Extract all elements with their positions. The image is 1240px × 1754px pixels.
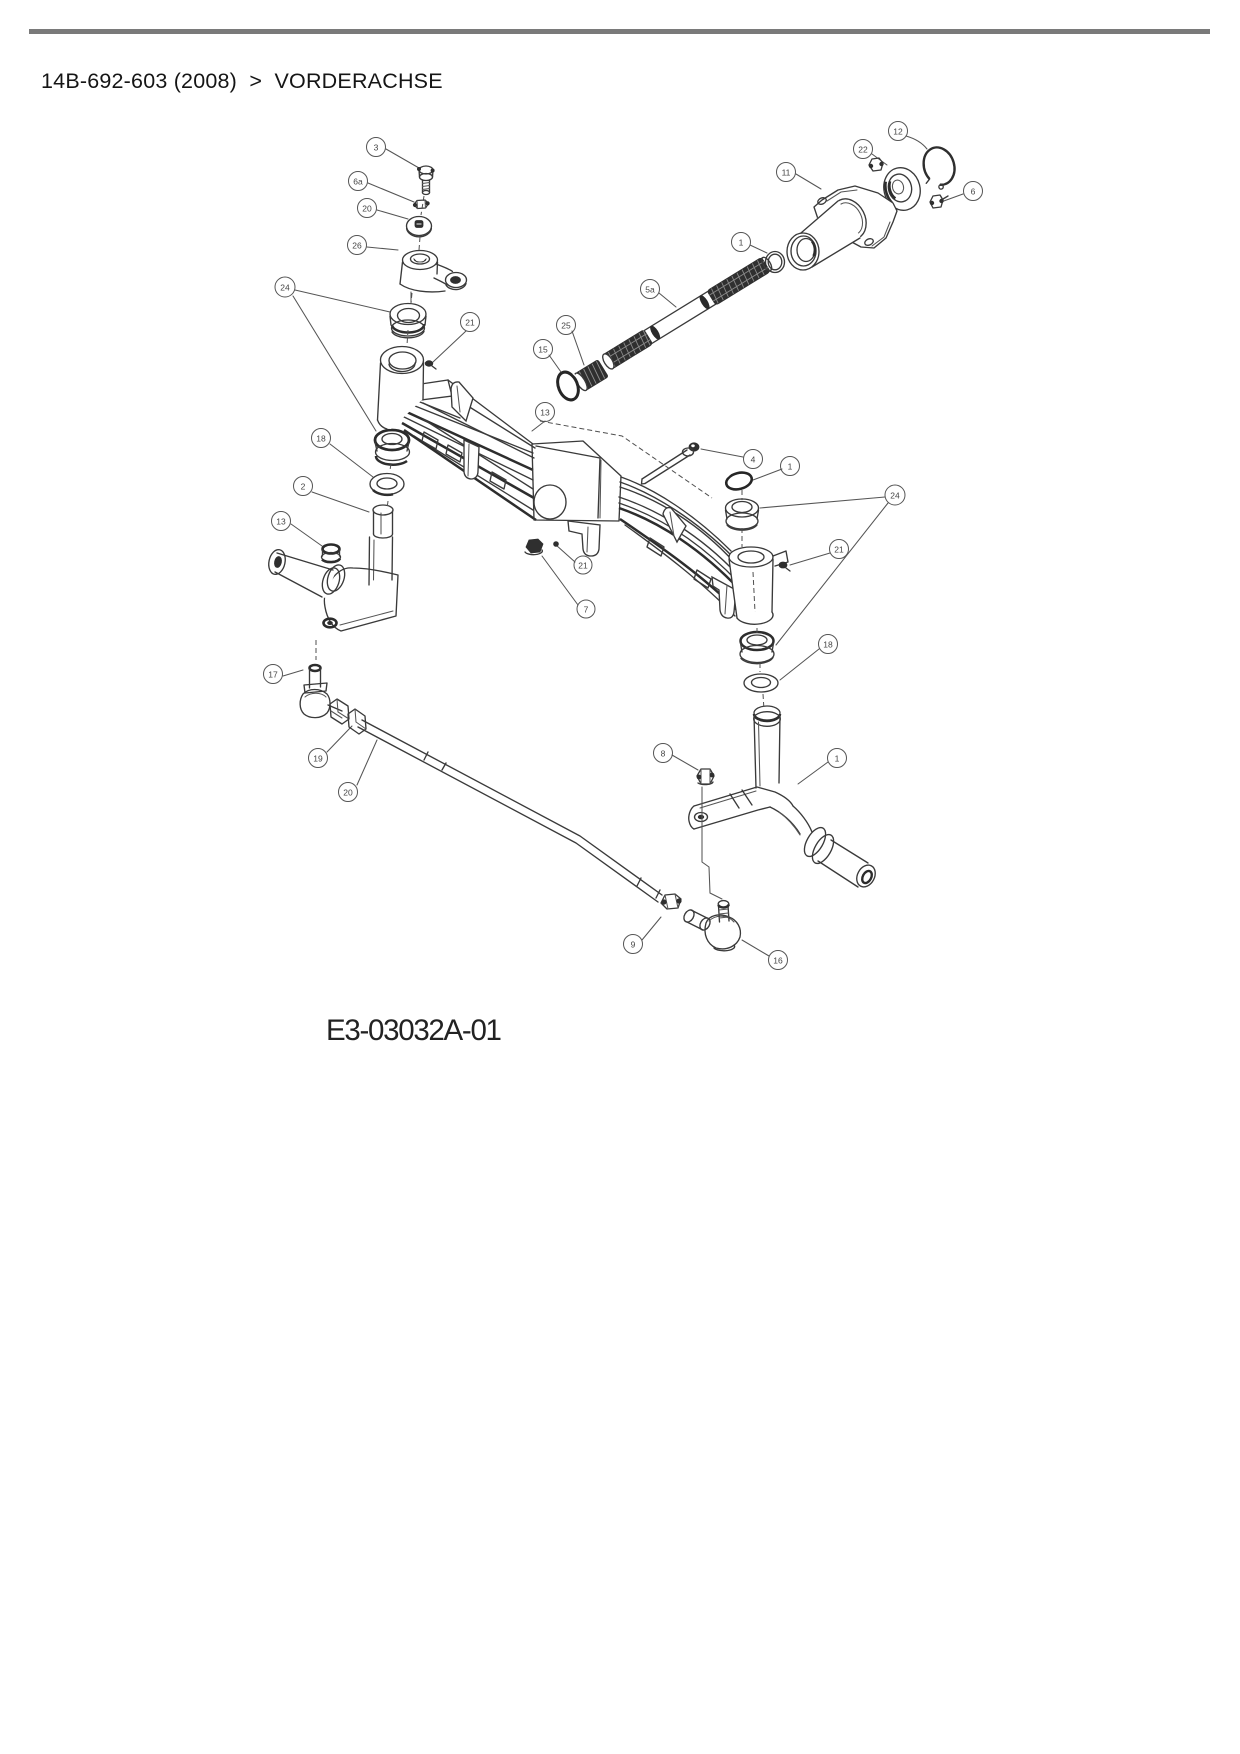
svg-text:2: 2 xyxy=(301,481,306,491)
svg-text:20: 20 xyxy=(343,787,353,797)
svg-text:6: 6 xyxy=(971,186,976,196)
svg-text:21: 21 xyxy=(465,317,475,327)
svg-text:13: 13 xyxy=(276,516,286,526)
svg-text:E3-03032A-01: E3-03032A-01 xyxy=(326,1014,501,1047)
svg-text:15: 15 xyxy=(538,344,548,354)
svg-text:11: 11 xyxy=(782,167,791,177)
svg-text:6a: 6a xyxy=(353,176,363,186)
svg-text:1: 1 xyxy=(739,237,744,247)
svg-text:12: 12 xyxy=(893,126,903,136)
svg-text:21: 21 xyxy=(834,544,844,554)
svg-text:18: 18 xyxy=(823,639,833,649)
svg-text:1: 1 xyxy=(835,753,840,763)
svg-text:26: 26 xyxy=(352,240,362,250)
svg-text:21: 21 xyxy=(578,560,588,570)
svg-text:7: 7 xyxy=(584,604,589,614)
svg-text:3: 3 xyxy=(374,142,379,152)
svg-text:8: 8 xyxy=(661,748,666,758)
svg-text:5a: 5a xyxy=(645,284,655,294)
svg-text:18: 18 xyxy=(316,433,326,443)
svg-text:9: 9 xyxy=(631,939,636,949)
svg-text:22: 22 xyxy=(858,144,868,154)
svg-text:24: 24 xyxy=(280,282,290,292)
svg-text:24: 24 xyxy=(890,490,900,500)
svg-text:4: 4 xyxy=(751,454,756,464)
svg-text:19: 19 xyxy=(313,753,323,763)
svg-text:16: 16 xyxy=(773,955,783,965)
svg-text:20: 20 xyxy=(362,203,372,213)
svg-text:17: 17 xyxy=(268,669,278,679)
svg-text:13: 13 xyxy=(540,407,550,417)
svg-text:25: 25 xyxy=(561,320,571,330)
svg-text:1: 1 xyxy=(788,461,793,471)
